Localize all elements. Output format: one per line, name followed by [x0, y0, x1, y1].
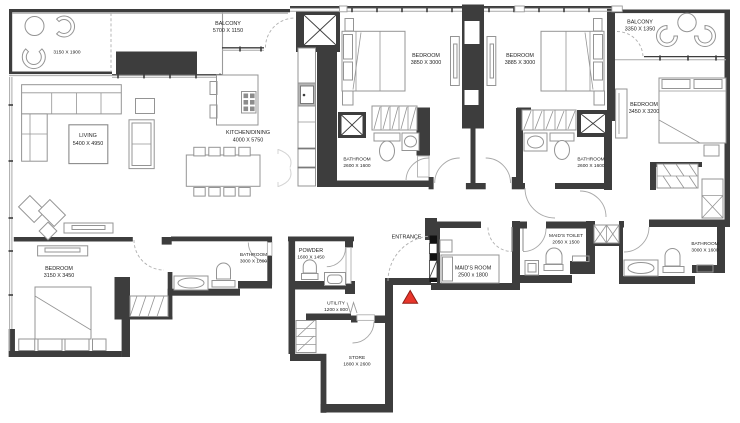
svg-text:3885 X 3000: 3885 X 3000 [505, 60, 536, 66]
svg-text:3450 X 3200: 3450 X 3200 [629, 109, 660, 115]
svg-text:POWDER: POWDER [299, 248, 323, 254]
svg-text:2600 X 1600: 2600 X 1600 [577, 163, 605, 169]
svg-text:BATHROOM: BATHROOM [577, 157, 604, 163]
svg-text:ENTRANCE: ENTRANCE [392, 235, 422, 241]
svg-text:BEDROOM: BEDROOM [630, 102, 658, 108]
svg-text:2500 x 1800: 2500 x 1800 [458, 273, 488, 279]
svg-text:MAID'S ROOM: MAID'S ROOM [455, 266, 492, 272]
svg-text:BATHROOM: BATHROOM [343, 157, 370, 163]
svg-text:2600 X 1600: 2600 X 1600 [343, 163, 371, 169]
svg-text:1600 X 1450: 1600 X 1450 [297, 255, 325, 261]
svg-text:5700 X 1150: 5700 X 1150 [213, 28, 243, 34]
svg-text:3150 X 1900: 3150 X 1900 [53, 50, 81, 56]
svg-text:3350 X 1350: 3350 X 1350 [625, 27, 656, 33]
svg-text:5400 X 4950: 5400 X 4950 [73, 141, 104, 147]
svg-text:LIVING: LIVING [79, 133, 97, 139]
svg-text:BEDROOM: BEDROOM [412, 53, 440, 59]
svg-text:1200 x 800: 1200 x 800 [324, 307, 348, 313]
svg-text:UTILITY: UTILITY [327, 301, 346, 307]
svg-text:3850 X 3000: 3850 X 3000 [411, 60, 442, 66]
svg-text:MAID'S TOILET: MAID'S TOILET [549, 233, 583, 239]
svg-text:3000 X 1600: 3000 X 1600 [240, 259, 268, 265]
svg-text:4000 X 5750: 4000 X 5750 [233, 138, 264, 144]
svg-text:2050 X 1500: 2050 X 1500 [552, 240, 580, 246]
svg-text:KITCHEN/DINING: KITCHEN/DINING [226, 130, 270, 136]
svg-text:BALCONY: BALCONY [215, 21, 241, 27]
svg-text:STORE: STORE [349, 355, 365, 361]
svg-text:3000 X 1600: 3000 X 1600 [691, 248, 719, 254]
svg-text:BALCONY: BALCONY [627, 20, 653, 26]
svg-text:1800 X 2600: 1800 X 2600 [343, 362, 371, 368]
svg-text:BATHROOM: BATHROOM [691, 241, 718, 247]
svg-text:BEDROOM: BEDROOM [45, 266, 73, 272]
svg-text:BATHROOM: BATHROOM [240, 252, 267, 258]
svg-text:3150 X 3450: 3150 X 3450 [44, 273, 75, 279]
svg-text:BEDROOM: BEDROOM [506, 53, 534, 59]
